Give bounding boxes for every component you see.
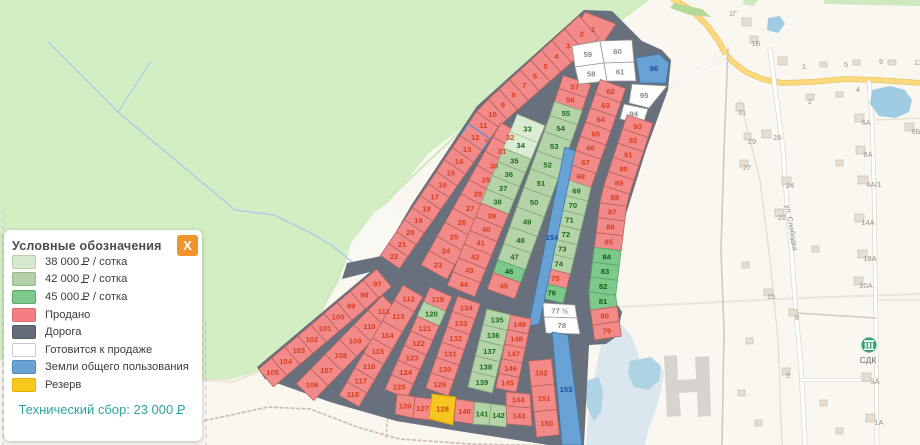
svg-text:20А: 20А (859, 281, 872, 290)
svg-text:32: 32 (506, 133, 515, 142)
svg-text:147: 147 (507, 349, 520, 358)
svg-text:109: 109 (349, 337, 362, 346)
svg-text:38: 38 (493, 198, 502, 207)
svg-text:4А/1: 4А/1 (866, 180, 881, 189)
svg-text:13: 13 (914, 58, 920, 67)
svg-text:16: 16 (438, 181, 447, 190)
svg-text:61: 61 (616, 67, 625, 76)
svg-text:106: 106 (306, 381, 319, 390)
svg-text:1А: 1А (874, 418, 883, 427)
svg-text:СДК: СДК (860, 355, 877, 365)
svg-text:46: 46 (505, 267, 514, 276)
svg-text:95: 95 (640, 91, 649, 100)
svg-text:139: 139 (475, 378, 488, 387)
svg-text:86: 86 (606, 223, 615, 232)
svg-text:47: 47 (510, 252, 519, 261)
svg-text:36: 36 (505, 170, 514, 179)
svg-text:24: 24 (786, 181, 794, 190)
svg-text:78: 78 (558, 321, 567, 330)
svg-text:51: 51 (537, 179, 546, 188)
svg-text:2: 2 (808, 97, 812, 106)
svg-text:117: 117 (355, 377, 367, 386)
svg-text:94: 94 (630, 110, 639, 119)
svg-text:3А: 3А (870, 377, 879, 386)
svg-text:57: 57 (571, 82, 580, 91)
svg-text:5: 5 (844, 60, 848, 69)
svg-text:151: 151 (538, 394, 552, 403)
svg-text:33: 33 (523, 124, 532, 133)
svg-text:127: 127 (416, 404, 429, 413)
svg-text:1: 1 (591, 25, 596, 34)
svg-text:28: 28 (773, 133, 781, 142)
svg-text:6А: 6А (861, 118, 870, 127)
svg-text:15: 15 (767, 292, 775, 301)
svg-text:84: 84 (603, 252, 612, 261)
svg-text:152: 152 (535, 369, 548, 378)
svg-text:55: 55 (562, 109, 571, 118)
svg-text:82: 82 (599, 282, 608, 291)
svg-text:135: 135 (491, 316, 505, 325)
svg-text:99: 99 (347, 302, 356, 311)
svg-text:116: 116 (363, 362, 375, 371)
svg-text:73: 73 (558, 245, 567, 254)
svg-text:138: 138 (479, 362, 493, 371)
svg-text:101: 101 (319, 324, 333, 333)
svg-text:115: 115 (372, 347, 385, 356)
svg-text:14: 14 (455, 157, 464, 166)
svg-text:40: 40 (482, 225, 491, 234)
svg-text:64: 64 (596, 115, 605, 124)
svg-text:111: 111 (378, 307, 391, 316)
svg-text:22: 22 (390, 252, 399, 261)
svg-text:90: 90 (619, 165, 628, 174)
svg-text:53: 53 (550, 142, 559, 151)
svg-text:144: 144 (512, 396, 526, 405)
svg-text:120: 120 (425, 310, 438, 319)
svg-text:121: 121 (418, 324, 432, 333)
svg-text:100: 100 (332, 313, 345, 322)
svg-text:18: 18 (422, 204, 431, 213)
svg-text:43: 43 (465, 266, 474, 275)
svg-text:48: 48 (516, 236, 525, 245)
svg-text:150: 150 (540, 419, 553, 428)
svg-text:29: 29 (482, 176, 491, 185)
svg-text:85: 85 (604, 237, 613, 246)
svg-text:27: 27 (743, 163, 751, 172)
svg-text:154: 154 (546, 233, 559, 242)
svg-text:142: 142 (492, 411, 505, 420)
svg-text:153: 153 (560, 385, 573, 394)
svg-text:110: 110 (363, 322, 375, 331)
svg-text:75: 75 (551, 274, 560, 283)
svg-text:20: 20 (406, 228, 415, 237)
svg-text:21: 21 (398, 240, 407, 249)
svg-text:91: 91 (624, 150, 633, 159)
svg-text:29: 29 (748, 137, 756, 146)
svg-text:13: 13 (463, 145, 472, 154)
svg-text:41: 41 (476, 239, 485, 248)
svg-text:11: 11 (479, 121, 488, 130)
svg-text:126: 126 (399, 401, 412, 410)
svg-text:54: 54 (556, 124, 565, 133)
svg-text:31: 31 (498, 147, 507, 156)
svg-text:87: 87 (608, 208, 617, 217)
svg-text:3: 3 (566, 42, 570, 51)
svg-text:137: 137 (483, 347, 496, 356)
svg-text:141: 141 (476, 409, 490, 418)
svg-text:8А: 8А (863, 150, 872, 159)
svg-text:102: 102 (305, 335, 318, 344)
svg-text:23: 23 (434, 261, 443, 270)
svg-text:6: 6 (533, 71, 537, 80)
svg-text:103: 103 (292, 346, 305, 355)
svg-text:113: 113 (392, 312, 404, 321)
svg-text:69: 69 (572, 186, 581, 195)
svg-text:5: 5 (544, 62, 549, 71)
svg-text:31: 31 (738, 108, 746, 117)
svg-text:2: 2 (580, 29, 584, 38)
svg-text:80: 80 (601, 312, 610, 321)
svg-text:59: 59 (584, 50, 593, 59)
svg-text:58: 58 (587, 69, 596, 78)
svg-text:67: 67 (581, 158, 590, 167)
svg-text:71: 71 (565, 216, 574, 225)
svg-text:83: 83 (601, 267, 610, 276)
svg-text:37: 37 (499, 184, 508, 193)
svg-text:1: 1 (802, 62, 806, 71)
svg-text:6Б: 6Б (911, 127, 920, 136)
svg-text:63: 63 (601, 101, 610, 110)
svg-text:98: 98 (360, 291, 369, 300)
svg-text:143: 143 (513, 412, 526, 421)
svg-text:104: 104 (279, 357, 293, 366)
svg-text:146: 146 (504, 364, 517, 373)
svg-text:70: 70 (569, 201, 578, 210)
svg-text:81: 81 (599, 297, 608, 306)
svg-text:148: 148 (510, 335, 524, 344)
svg-text:1Б: 1Б (751, 39, 760, 48)
svg-text:122: 122 (412, 339, 425, 348)
svg-text:134: 134 (460, 304, 474, 313)
svg-text:128: 128 (436, 404, 450, 413)
svg-text:132: 132 (449, 334, 462, 343)
svg-text:12: 12 (471, 133, 480, 142)
svg-text:52: 52 (543, 161, 552, 170)
svg-text:27: 27 (466, 204, 475, 213)
svg-text:79: 79 (603, 326, 612, 335)
svg-text:8: 8 (795, 313, 799, 322)
svg-text:4: 4 (554, 52, 559, 61)
svg-text:50: 50 (530, 198, 539, 207)
svg-text:62: 62 (606, 87, 615, 96)
svg-text:97: 97 (373, 279, 382, 288)
svg-text:88: 88 (611, 193, 620, 202)
svg-text:105: 105 (266, 368, 280, 377)
svg-text:108: 108 (334, 351, 348, 360)
svg-text:133: 133 (455, 319, 468, 328)
svg-text:26: 26 (458, 218, 467, 227)
svg-text:5: 5 (786, 371, 790, 380)
svg-text:93: 93 (633, 122, 642, 131)
svg-text:76: 76 (548, 289, 557, 298)
svg-text:35: 35 (510, 156, 519, 165)
svg-text:39: 39 (488, 211, 497, 220)
svg-text:125: 125 (393, 383, 407, 392)
svg-text:45: 45 (500, 282, 509, 291)
svg-text:10: 10 (488, 110, 497, 119)
svg-text:112: 112 (402, 294, 414, 303)
svg-text:30: 30 (490, 161, 499, 170)
svg-text:15: 15 (447, 169, 456, 178)
svg-text:18А: 18А (863, 254, 876, 263)
svg-text:9: 9 (501, 100, 505, 109)
svg-text:107: 107 (320, 366, 333, 375)
svg-text:68: 68 (577, 172, 586, 181)
svg-text:74: 74 (555, 259, 564, 268)
svg-text:77 ½: 77 ½ (551, 306, 569, 315)
svg-text:89: 89 (615, 179, 624, 188)
svg-text:1Г: 1Г (729, 9, 737, 18)
svg-text:19: 19 (414, 216, 423, 225)
svg-text:129: 129 (433, 380, 446, 389)
svg-text:96: 96 (650, 64, 659, 73)
svg-text:114: 114 (381, 331, 394, 340)
svg-text:131: 131 (444, 350, 458, 359)
svg-text:118: 118 (347, 390, 360, 399)
svg-text:92: 92 (629, 136, 638, 145)
svg-text:7: 7 (522, 81, 526, 90)
svg-text:34: 34 (516, 141, 525, 150)
svg-text:130: 130 (439, 365, 452, 374)
svg-text:72: 72 (562, 230, 571, 239)
svg-text:44: 44 (460, 280, 469, 289)
svg-text:8: 8 (511, 91, 516, 100)
svg-text:140: 140 (458, 407, 471, 416)
svg-text:24: 24 (442, 247, 451, 256)
svg-text:4: 4 (856, 85, 860, 94)
svg-text:17: 17 (430, 192, 439, 201)
svg-text:145: 145 (501, 379, 515, 388)
svg-text:9: 9 (879, 57, 883, 66)
svg-text:66: 66 (586, 144, 595, 153)
svg-text:28: 28 (474, 190, 483, 199)
svg-text:49: 49 (523, 218, 532, 227)
svg-text:149: 149 (513, 320, 526, 329)
svg-text:½: ½ (484, 138, 489, 145)
svg-text:124: 124 (399, 368, 413, 377)
svg-text:123: 123 (406, 353, 419, 362)
svg-text:136: 136 (487, 331, 500, 340)
svg-text:60: 60 (613, 47, 622, 56)
svg-text:56: 56 (566, 96, 575, 105)
svg-text:25: 25 (450, 232, 459, 241)
svg-text:42: 42 (471, 253, 480, 262)
svg-text:65: 65 (591, 129, 600, 138)
svg-text:119: 119 (432, 295, 444, 304)
svg-text:14А: 14А (861, 218, 874, 227)
